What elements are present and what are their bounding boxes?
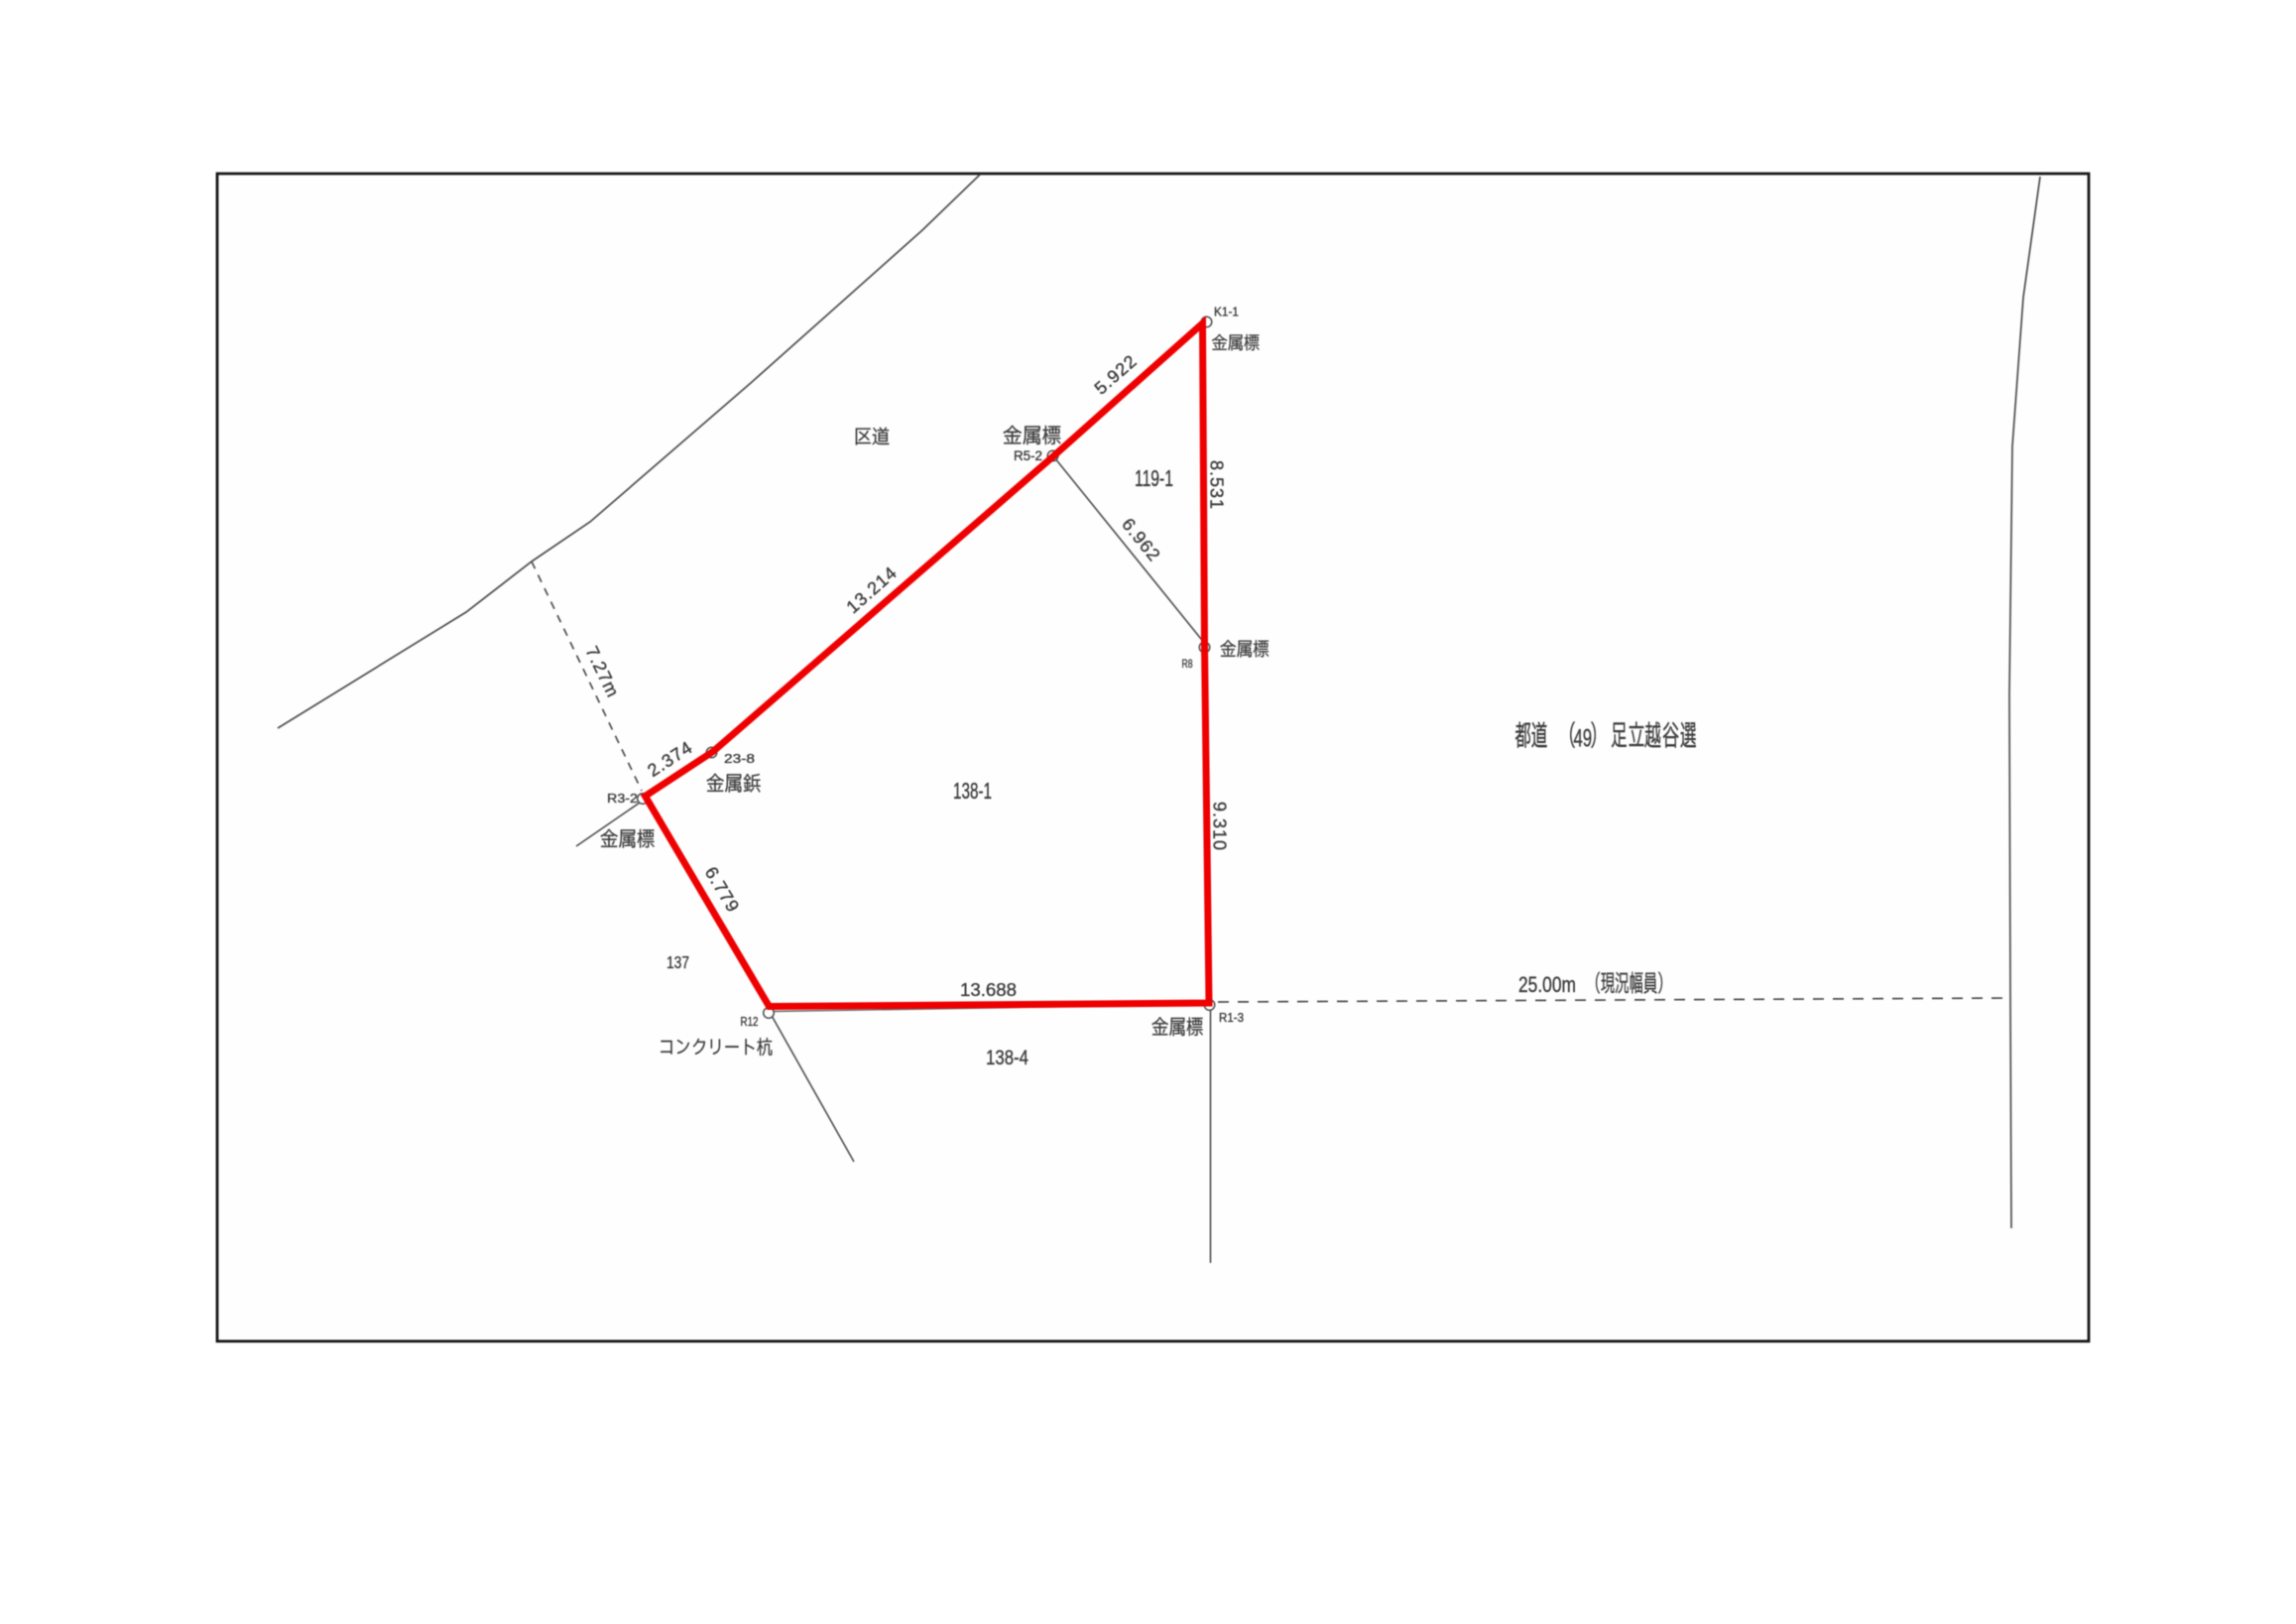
- svg-text:119-1: 119-1: [1135, 465, 1173, 491]
- svg-text:R5-2: R5-2: [1014, 448, 1042, 463]
- svg-text:R8: R8: [1182, 659, 1193, 671]
- svg-text:137: 137: [666, 952, 689, 972]
- svg-text:R3-2: R3-2: [607, 791, 638, 806]
- svg-text:R12: R12: [741, 1015, 759, 1029]
- svg-text:9.310: 9.310: [1210, 802, 1230, 851]
- svg-text:23-8: 23-8: [724, 751, 755, 766]
- svg-text:138-1: 138-1: [953, 778, 992, 804]
- svg-text:13.688: 13.688: [960, 980, 1017, 1000]
- svg-text:49: 49: [1574, 724, 1593, 752]
- svg-text:25.00m: 25.00m: [1518, 972, 1576, 997]
- svg-text:8.531: 8.531: [1207, 460, 1227, 510]
- svg-text:K1-1: K1-1: [1214, 305, 1239, 319]
- svg-text:138-4: 138-4: [986, 1046, 1028, 1069]
- svg-text:R1-3: R1-3: [1219, 1011, 1244, 1025]
